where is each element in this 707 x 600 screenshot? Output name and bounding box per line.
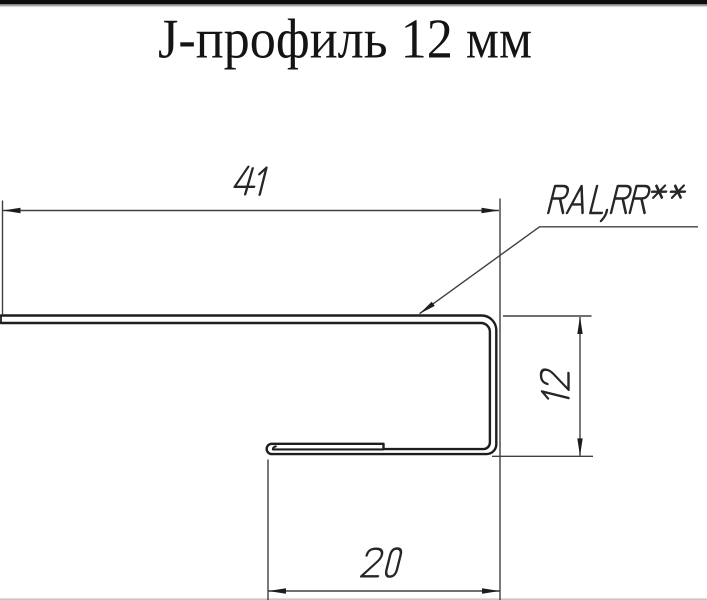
svg-text:J-профиль 12 мм: J-профиль 12 мм	[158, 9, 532, 71]
